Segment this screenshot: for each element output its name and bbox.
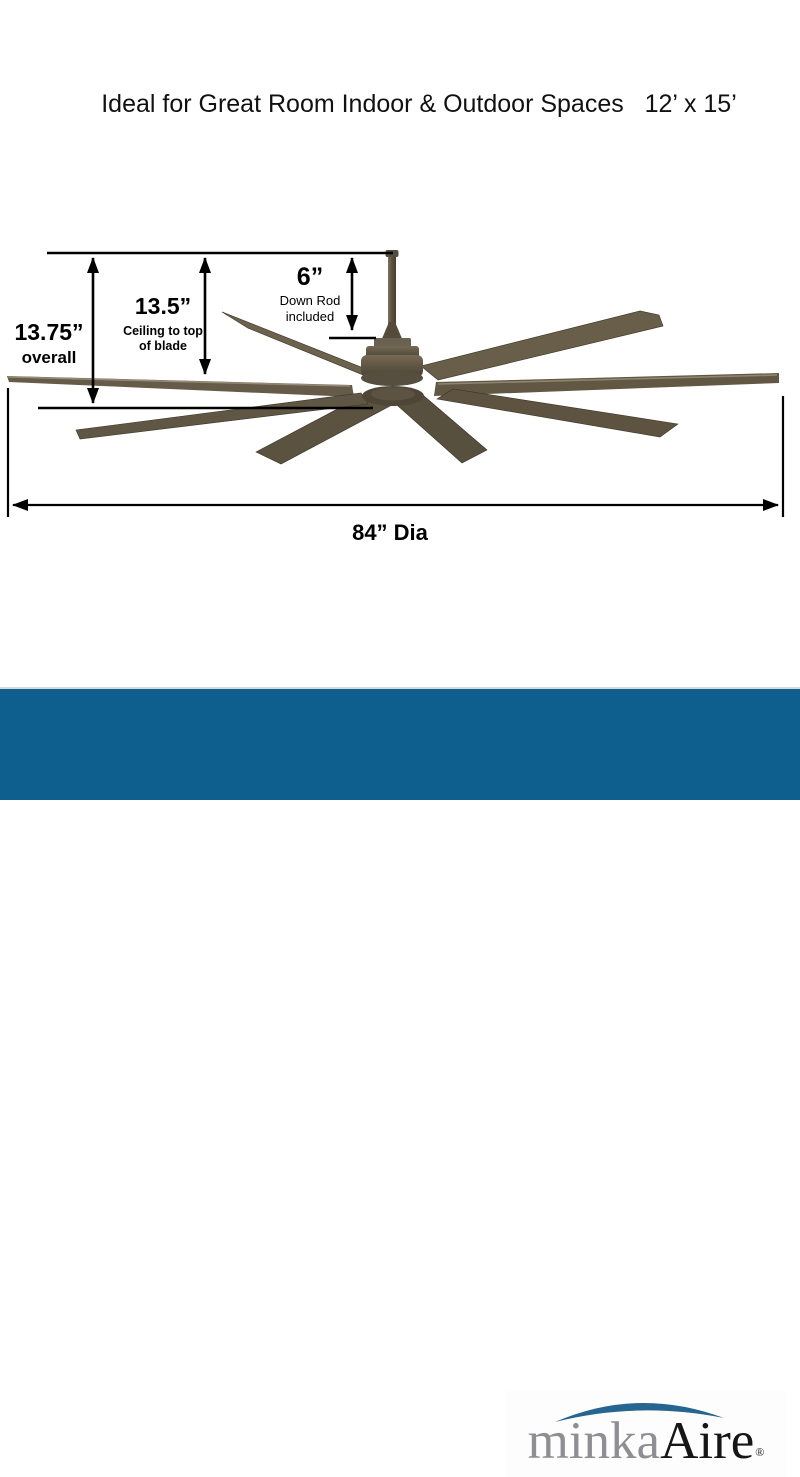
ceiling-to-blade-value: 13.5” [113,294,213,318]
dim-label-ceiling-to-blade: 13.5” Ceiling to top of blade [113,294,213,353]
fan-blade [437,389,678,437]
downrod-caption-line1: Down Rod [260,293,360,308]
overall-value: 13.75” [4,320,94,344]
fan-blade [421,311,663,380]
hub-bottom-cap [362,386,424,406]
downrod-value: 6” [260,264,360,290]
logo-text-aire: Aire [660,1412,754,1470]
fan-blade [7,376,354,397]
down-rod [381,250,403,341]
logo-text-minka: minka [528,1412,660,1470]
ceiling-to-blade-caption-line1: Ceiling to top [113,324,213,338]
downrod-caption-line2: included [260,309,360,324]
registered-trademark-icon: ® [755,1445,764,1459]
dim-label-diameter: 84” Dia [310,521,470,544]
motor-housing [361,338,423,386]
ceiling-to-blade-caption-line2: of blade [113,339,213,353]
dim-label-downrod: 6” Down Rod included [260,264,360,324]
overall-caption: overall [4,349,94,367]
minka-aire-logo: minkaAire® [505,1391,786,1477]
fan-blade [434,373,779,396]
dim-label-overall: 13.75” overall [4,320,94,367]
fan-blade [398,396,487,463]
fan-illustration [7,250,779,464]
footer-brand-bar: minkaAire® [0,687,800,800]
